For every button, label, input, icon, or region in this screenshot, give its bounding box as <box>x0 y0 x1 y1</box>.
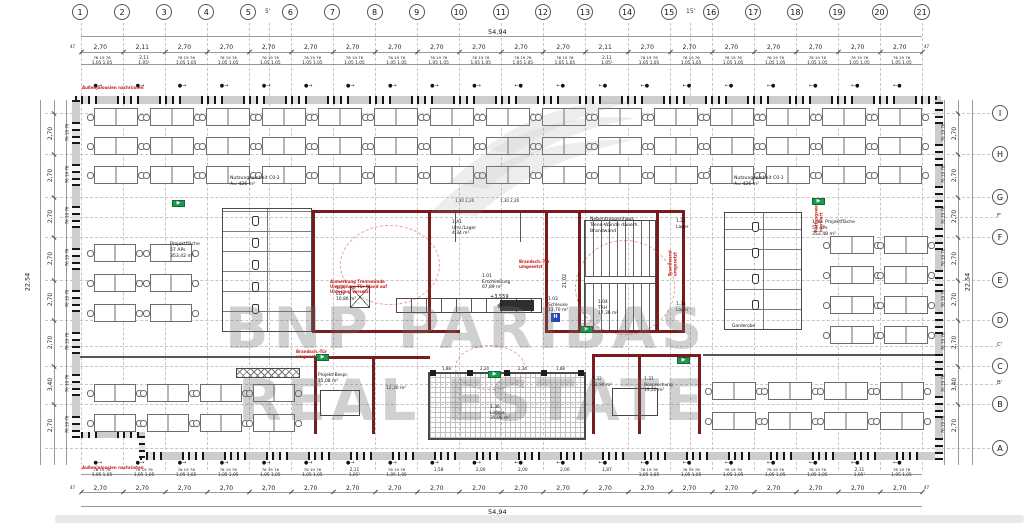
row-bubble: C <box>992 358 1008 374</box>
fire-rated-wall <box>312 210 685 213</box>
row-bubble: A <box>992 440 1008 456</box>
toilet-fixture <box>252 260 259 270</box>
room-label: 1.03 Schleuse 13,70 m² <box>548 297 568 314</box>
area-label: Projektfläche 57 APs 353,42 m² <box>170 242 200 260</box>
vent-arrow: ←● <box>599 83 608 89</box>
window-dims-left: 76 19 76 <box>64 248 69 266</box>
vent-arrow: ●→ <box>430 83 439 89</box>
fire-rated-wall <box>372 356 375 434</box>
vent-arrow: ●→ <box>430 460 439 466</box>
grid-intermediate-label: 5' <box>265 8 270 15</box>
vent-arrow: ●→ <box>346 83 355 89</box>
vent-arrow: ←● <box>809 83 818 89</box>
vent-arrow: ←● <box>767 83 776 89</box>
vent-arrow: ●→ <box>178 83 187 89</box>
desk-cluster <box>712 382 756 400</box>
desk-cluster <box>878 108 922 126</box>
fire-rated-wall <box>314 356 317 434</box>
window-dims-right: 76 19 76 <box>940 165 945 183</box>
toilet-fixture <box>252 282 259 292</box>
desk-cluster <box>824 382 868 400</box>
desk-cluster <box>94 414 136 432</box>
desk-cluster <box>884 236 928 254</box>
room-label: Garderobe <box>732 324 755 330</box>
red-annotation: Anmerkung Trennwände Umplanung TS: Wand … <box>330 279 387 295</box>
vent-arrow: ●→ <box>220 460 229 466</box>
wc-block <box>724 212 802 330</box>
desk-cluster <box>94 304 136 322</box>
exit-sign: ▶ <box>172 200 185 207</box>
red-annotation: Außenjalousien nachrüsten <box>82 85 144 90</box>
interior-wall <box>520 210 521 242</box>
end-offset-label: 47 <box>924 485 929 490</box>
red-annotation: Rettungsweg markiert <box>814 202 824 232</box>
grid-bubble: 20 <box>872 4 888 20</box>
desk-cluster <box>206 108 250 126</box>
window-bottom-edge <box>55 515 1024 523</box>
desk-cluster <box>94 137 138 155</box>
kitchen-appliance <box>500 300 534 311</box>
level-mark: +3,559 <box>490 294 509 300</box>
vent-arrow: ●→ <box>262 83 271 89</box>
fire-rated-wall <box>698 354 701 434</box>
grid-bubble: 14 <box>619 4 635 20</box>
desk-cluster <box>654 137 698 155</box>
red-annotation: Brandsch.-Tür umgesetzt <box>519 259 550 269</box>
vent-arrow: ←● <box>514 460 523 466</box>
desk-cluster <box>830 236 874 254</box>
desk-cluster <box>710 137 754 155</box>
vent-arrow: ●→ <box>388 83 397 89</box>
end-offset-label: 47 <box>70 485 75 490</box>
desk-cluster <box>206 137 250 155</box>
facade-wall <box>935 100 943 460</box>
red-annotation: Außenjalousien nachrüsten <box>82 465 144 470</box>
desk-cluster <box>147 384 189 402</box>
area-label: Nutzungseinheit C0-1 A= 426 m² <box>734 176 784 188</box>
desk-cluster <box>94 166 138 184</box>
meeting-table <box>320 390 360 416</box>
window-dims-right: 76 19 76 <box>940 248 945 266</box>
interior-wall <box>75 356 315 358</box>
row-intermediate-label: F' <box>997 213 1002 219</box>
grid-bubble: 2 <box>114 4 130 20</box>
grid-bubble: 8 <box>367 4 383 20</box>
desk-cluster <box>542 108 586 126</box>
desk-cluster <box>430 137 474 155</box>
desk-cluster <box>147 414 189 432</box>
row-bubble: E <box>992 272 1008 288</box>
vent-arrow: ●→ <box>220 83 229 89</box>
vent-arrow: ←● <box>556 83 565 89</box>
desk-cluster <box>430 166 474 184</box>
interior-wall <box>703 354 938 356</box>
row-bubble: B <box>992 396 1008 412</box>
desk-cluster <box>318 166 362 184</box>
desk-cluster <box>200 414 242 432</box>
revision-cloud <box>455 345 525 390</box>
desk-cluster <box>150 274 192 292</box>
desk-cluster <box>318 137 362 155</box>
room-label: 12,30 m² <box>386 386 406 392</box>
desk-cluster <box>253 384 295 402</box>
desk-cluster <box>766 108 810 126</box>
exit-sign: ▶ <box>812 198 825 205</box>
grid-bubble: 9 <box>409 4 425 20</box>
area-label: Nutzungseinheit C0-2 A= 426 m² <box>230 176 280 188</box>
fire-rated-wall <box>545 210 548 333</box>
vent-arrow: ●→ <box>472 460 481 466</box>
locker-row <box>236 368 300 378</box>
desk-cluster <box>150 137 194 155</box>
desk-cluster <box>598 166 642 184</box>
desk-cluster <box>200 384 242 402</box>
desk-cluster <box>880 382 924 400</box>
level-symbol: ⊕ <box>497 302 503 310</box>
row-intermediate-label: B' <box>997 380 1002 386</box>
window-dims-right: 76 19 76 <box>940 207 945 225</box>
vent-arrow: ●→ <box>304 460 313 466</box>
end-offset-label: 47 <box>924 44 929 49</box>
desk-cluster <box>374 166 418 184</box>
vent-arrow: ←● <box>893 460 902 466</box>
desk-cluster <box>94 108 138 126</box>
exit-sign: ▶ <box>580 326 593 333</box>
desk-cluster <box>830 326 874 344</box>
loggia-top-dim: 1,88 <box>556 366 565 371</box>
vent-arrow: ←● <box>599 460 608 466</box>
desk-cluster <box>710 108 754 126</box>
vent-arrow: ←● <box>683 460 692 466</box>
exit-sign: ▶ <box>316 354 329 361</box>
desk-cluster <box>430 108 474 126</box>
toilet-fixture <box>252 304 259 314</box>
desk-cluster <box>830 296 874 314</box>
hydrant-marker: H <box>551 313 560 322</box>
desk-cluster <box>253 414 295 432</box>
wc-block <box>222 208 312 332</box>
facade-wall <box>139 432 145 458</box>
fire-rated-wall <box>638 354 641 434</box>
desk-cluster <box>542 166 586 184</box>
vent-arrow: ←● <box>556 460 565 466</box>
desk-cluster <box>150 108 194 126</box>
vent-arrow: ●→ <box>178 460 187 466</box>
fire-rated-wall <box>592 354 595 434</box>
desk-cluster <box>374 108 418 126</box>
desk-cluster <box>374 137 418 155</box>
room-label: 1.A1 Uml./Lager 4,34 m² <box>452 220 476 237</box>
desk-cluster <box>878 137 922 155</box>
vent-arrow: ←● <box>641 460 650 466</box>
window-dims-left: 76 19 76 <box>64 207 69 225</box>
room-label: 1.34 Lager <box>676 302 688 313</box>
window-dims-left: 76 19 76 <box>64 375 69 393</box>
desk-cluster <box>884 266 928 284</box>
toilet-fixture <box>752 248 759 258</box>
room-label: 1.36 Loggia 35,06 m² <box>490 405 510 422</box>
vent-arrow: ●→ <box>388 460 397 466</box>
facade-wall <box>72 100 80 438</box>
revision-cloud <box>575 240 675 335</box>
row-bubble: F <box>992 229 1008 245</box>
vent-arrow: ←● <box>514 83 523 89</box>
vent-arrow: ●→ <box>262 460 271 466</box>
vent-arrow: ←● <box>683 83 692 89</box>
desk-cluster <box>262 108 306 126</box>
desk-cluster <box>150 166 194 184</box>
loggia-top-dim: 1,88 <box>442 366 451 371</box>
desk-cluster <box>830 266 874 284</box>
wc-partition <box>763 213 764 329</box>
vent-arrow: ←● <box>851 83 860 89</box>
grid-intermediate-label: 15' <box>686 8 695 15</box>
exit-sign: ▶ <box>677 357 690 364</box>
loggia-column <box>578 370 584 376</box>
window-dims-left: 76 19 76 <box>64 333 69 351</box>
vent-arrow: ←● <box>725 83 734 89</box>
desk-cluster <box>880 412 924 430</box>
grid-bubble: 15 <box>661 4 677 20</box>
desk-cluster <box>486 108 530 126</box>
desk-cluster <box>486 137 530 155</box>
vent-arrow: ←● <box>851 460 860 466</box>
grid-bubble: 21 <box>914 4 930 20</box>
window-dims-right: 76 19 76 <box>940 333 945 351</box>
floor-plan-canvas: 1234567891011121314151617181920215'15'IH… <box>0 0 1024 523</box>
room-label: Projekt-Bespr. 15,08 m² <box>318 373 348 384</box>
facade-wall <box>75 432 145 438</box>
room-label: 1.01 Erschließung 67,89 m² <box>482 274 510 291</box>
desk-cluster <box>94 244 136 262</box>
vent-arrow: ←● <box>725 460 734 466</box>
grid-bubble: 13 <box>577 4 593 20</box>
window-dims-right: 76 19 76 <box>940 290 945 308</box>
desk-cluster <box>766 137 810 155</box>
facade-wall <box>75 96 941 104</box>
desk-cluster <box>712 412 756 430</box>
vent-arrow: ←● <box>809 460 818 466</box>
row-bubble: I <box>992 105 1008 121</box>
desk-cluster <box>822 166 866 184</box>
red-annotation: Brandwand umgesetzt <box>668 250 678 276</box>
window-dims-right: 76 19 76 <box>940 123 945 141</box>
toilet-fixture <box>252 216 259 226</box>
toilet-fixture <box>752 274 759 284</box>
room-label: 1.32 12,90 m² <box>592 377 612 388</box>
core-top-dims: 1,30 2,26 <box>500 198 519 203</box>
desk-cluster <box>768 382 812 400</box>
toilet-fixture <box>252 238 259 248</box>
room-label: 1.21 Lager <box>676 219 688 230</box>
desk-cluster <box>542 137 586 155</box>
desk-cluster <box>654 166 698 184</box>
desk-cluster <box>150 304 192 322</box>
loggia-column <box>541 370 547 376</box>
desk-cluster <box>884 326 928 344</box>
desk-cluster <box>318 108 362 126</box>
window-dims-right: 76 19 76 <box>940 416 945 434</box>
desk-cluster <box>486 166 530 184</box>
toilet-fixture <box>752 222 759 232</box>
grid-bubble: 12 <box>535 4 551 20</box>
desk-cluster <box>768 412 812 430</box>
window-dims-right: 76 19 76 <box>940 375 945 393</box>
window-dims-left: 76 19 76 <box>64 290 69 308</box>
end-offset-label: 47 <box>70 44 75 49</box>
vent-arrow: ●→ <box>346 460 355 466</box>
desk-cluster <box>598 137 642 155</box>
grid-bubble: 10 <box>451 4 467 20</box>
desk-cluster <box>824 412 868 430</box>
facade-wall <box>140 452 940 460</box>
toilet-fixture <box>752 300 759 310</box>
row-bubble: H <box>992 146 1008 162</box>
vent-arrow: ←● <box>893 83 902 89</box>
window-dims-left: 76 19 76 <box>64 416 69 434</box>
vent-arrow: ●→ <box>304 83 313 89</box>
desk-cluster <box>94 384 136 402</box>
desk-cluster <box>654 108 698 126</box>
fire-rated-wall <box>314 356 430 359</box>
wc-partition <box>267 209 268 331</box>
window-dims-left: 76 19 76 <box>64 165 69 183</box>
loggia-column <box>430 370 436 376</box>
desk-cluster <box>262 137 306 155</box>
desk-cluster <box>94 274 136 292</box>
grid-bubble: 1 <box>72 4 88 20</box>
desk-cluster <box>884 296 928 314</box>
row-bubble: G <box>992 189 1008 205</box>
area-label: Nebentreppenhaus Trenn-Wände dauerh. Bra… <box>590 217 639 235</box>
vent-arrow: ←● <box>767 460 776 466</box>
vent-arrow: ●→ <box>472 83 481 89</box>
core-top-dims: 1,30 2,26 <box>455 198 474 203</box>
exit-sign: ▶ <box>488 371 501 378</box>
row-intermediate-label: C' <box>997 342 1002 348</box>
row-bubble: D <box>992 312 1008 328</box>
vent-arrow: ←● <box>641 83 650 89</box>
fire-rated-wall <box>312 330 460 333</box>
desk-cluster <box>822 108 866 126</box>
grid-bubble: 11 <box>493 4 509 20</box>
desk-cluster <box>822 137 866 155</box>
window-dims-left: 76 19 76 <box>64 123 69 141</box>
desk-cluster <box>878 166 922 184</box>
room-label: 1.31 Besprechung 19,20 m² <box>644 377 673 394</box>
fire-rated-wall <box>312 210 315 333</box>
desk-cluster <box>598 108 642 126</box>
